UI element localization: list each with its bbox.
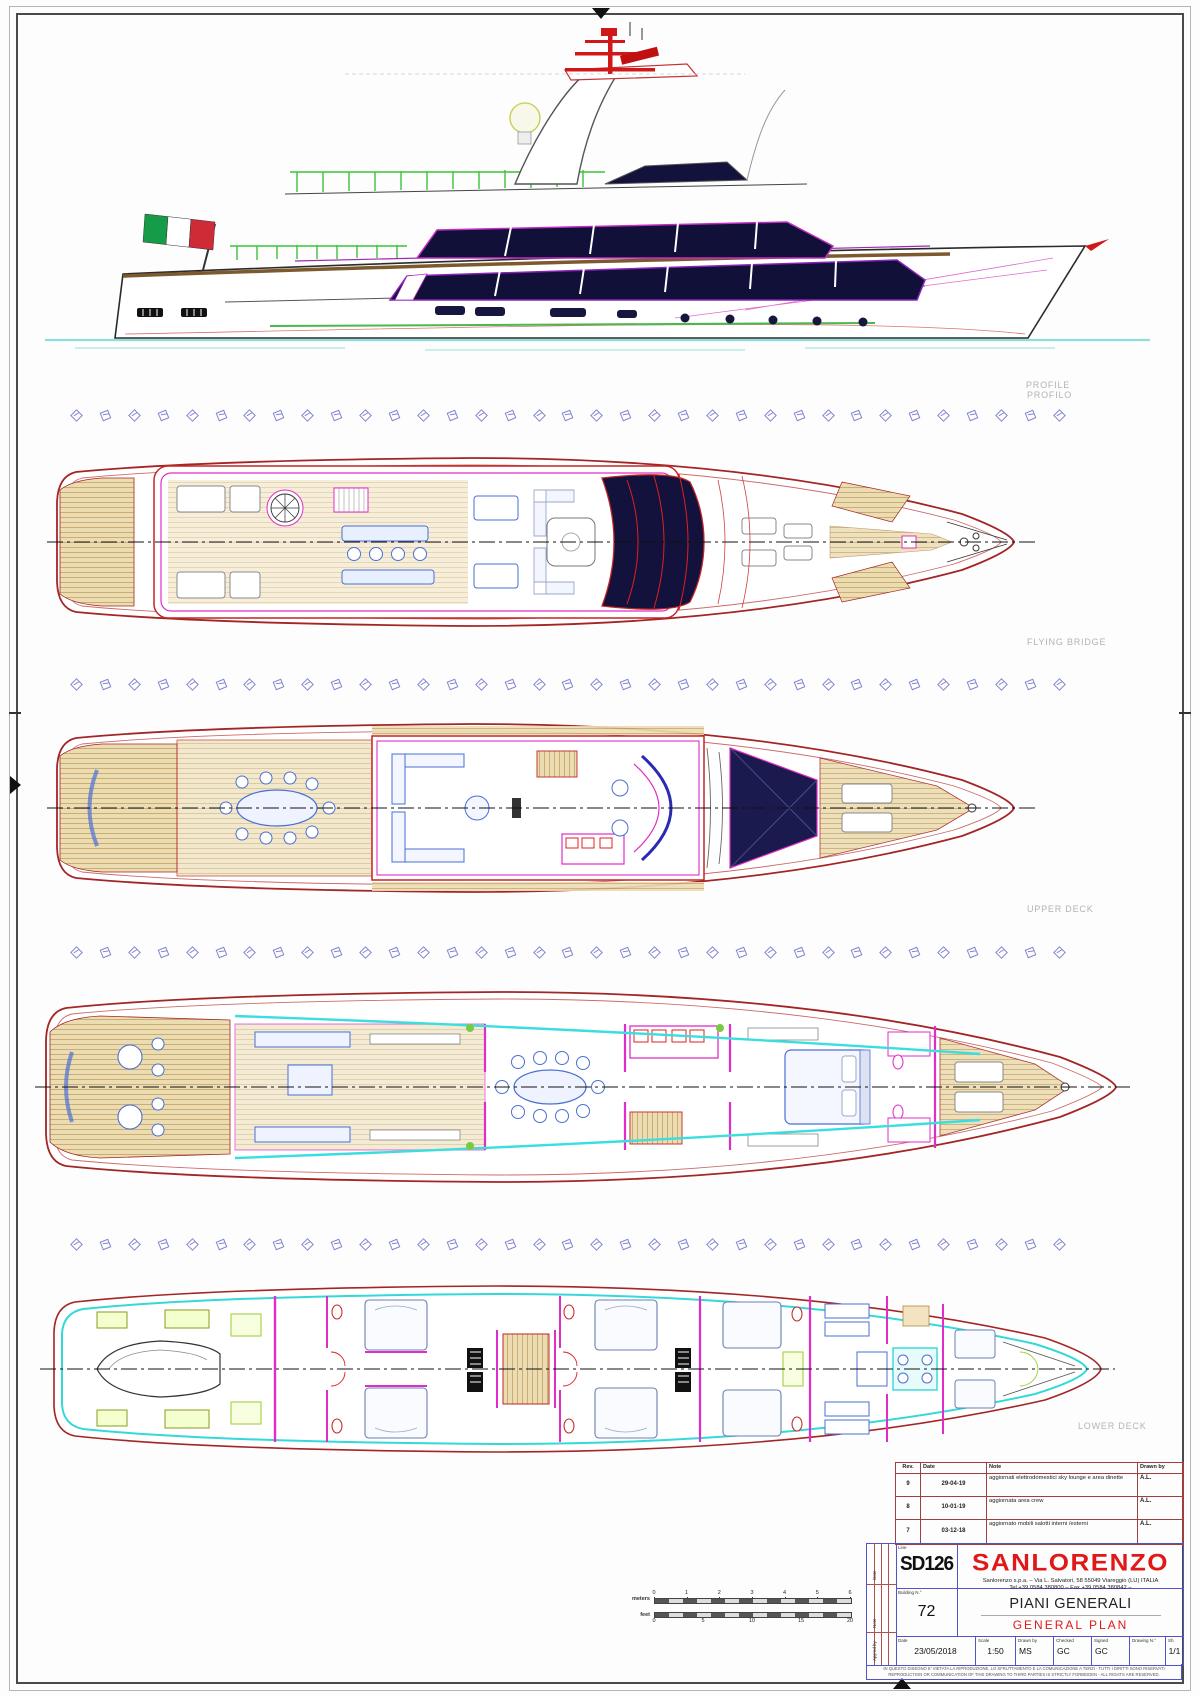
frame-marker-icon [100, 1238, 112, 1250]
frame-marker-icon [273, 1238, 285, 1250]
frame-marker-icon [301, 1238, 314, 1251]
frame-marker-icon [648, 678, 661, 691]
sanlorenzo-logo: SANLORENZO [958, 1548, 1183, 1577]
frame-marker-icon [533, 946, 546, 959]
meters-label: meters [626, 1596, 650, 1602]
profile-view-drawing [45, 18, 1150, 368]
frame-marker-icon [186, 409, 199, 422]
frame-marker-icon [417, 946, 430, 959]
frame-marker-icon [995, 678, 1008, 691]
rev-number: 8 [896, 1497, 921, 1520]
drawing-sheet: { "deck_labels": { "profile": "PROFILE",… [0, 0, 1200, 1697]
frame-marker-icon [128, 946, 141, 959]
frame-marker-icon [937, 678, 950, 691]
fold-tick-left [9, 712, 21, 714]
frame-marker-icon [648, 1238, 661, 1251]
frame-marker-icon [822, 409, 835, 422]
frame-marker-icon [793, 946, 805, 958]
frame-marker-icon [967, 946, 979, 958]
frame-marker-icon [562, 946, 574, 958]
rev-note: aggiornati elettrodomestici sky lounge e… [987, 1474, 1138, 1497]
frame-marker-icon [562, 409, 574, 421]
frame-marker-icon [389, 1238, 401, 1250]
feet-ticks: 0 5 10 15 20 [654, 1618, 850, 1626]
frame-marker-icon [128, 678, 141, 691]
frame-marker-icon [880, 1238, 893, 1251]
frame-marker-icon [533, 678, 546, 691]
frame-marker-icon [1053, 409, 1066, 422]
frame-marker-icon [331, 678, 343, 690]
frame-marker-icon [562, 678, 574, 690]
signed-value: GC [1092, 1646, 1129, 1656]
frame-marker-icon [70, 946, 83, 959]
disclaimer-english: REPRODUCTION OR COMMUNICATION OF THIS DR… [867, 1672, 1181, 1678]
frame-marker-icon [244, 678, 257, 691]
frame-marker-icon [186, 678, 199, 691]
frame-marker-icon [995, 409, 1008, 422]
frame-marker-icon [331, 946, 343, 958]
frame-marker-icon [301, 946, 314, 959]
frame-marker-icon [533, 1238, 546, 1251]
rev-drawn-by: A.L. [1138, 1497, 1183, 1520]
rev-drawn-by: A.L. [1138, 1520, 1183, 1544]
upper-deck-plan [42, 696, 1042, 921]
frame-marker-icon [244, 1238, 257, 1251]
frame-marker-icon [100, 946, 112, 958]
frame-marker-icon [475, 409, 488, 422]
frame-marker-icon [909, 678, 921, 690]
approval-strip: Date Note App'ed by [867, 1544, 897, 1665]
frame-marker-icon [273, 678, 285, 690]
frame-marker-icon [389, 946, 401, 958]
frame-marker-icon [1025, 946, 1037, 958]
frame-marker-icon [186, 946, 199, 959]
frame-marker-icon [909, 409, 921, 421]
upper-deck-label: UPPER DECK [1027, 904, 1094, 914]
frame-marker-icon [475, 678, 488, 691]
frame-marker-icon [1053, 1238, 1066, 1251]
frame-marker-icon [417, 678, 430, 691]
frame-marker-row [72, 408, 1064, 422]
frame-marker-icon [215, 946, 227, 958]
frame-marker-icon [648, 946, 661, 959]
frame-marker-icon [735, 946, 747, 958]
frame-marker-icon [678, 409, 690, 421]
frame-marker-icon [706, 1238, 719, 1251]
frame-marker-row [72, 1237, 1064, 1251]
frame-marker-icon [995, 946, 1008, 959]
frame-marker-row [72, 677, 1064, 691]
feet-label: feet [626, 1612, 650, 1618]
date-cell: Date 23/05/2018 [896, 1637, 976, 1665]
copyright-disclaimer: IN QUESTO DISEGNO E' VIETATA LA RIPRODUZ… [866, 1664, 1182, 1680]
frame-marker-icon [128, 1238, 141, 1251]
scale-meters: meters 0 1 2 3 4 5 6 [626, 1592, 866, 1608]
frame-marker-icon [880, 678, 893, 691]
signed-cell: Signed GC [1092, 1637, 1130, 1665]
rev-header: Rev. [896, 1463, 921, 1474]
frame-marker-icon [359, 409, 372, 422]
frame-marker-icon [446, 1238, 458, 1250]
strip-label-apped-by: App'ed by [872, 1641, 877, 1661]
frame-marker-icon [1053, 678, 1066, 691]
frame-marker-icon [967, 409, 979, 421]
frame-marker-icon [504, 409, 516, 421]
centering-mark-left-icon [10, 776, 21, 794]
frame-marker-icon [475, 946, 488, 959]
frame-marker-icon [620, 1238, 632, 1250]
frame-marker-icon [822, 1238, 835, 1251]
graphic-scale-bar: meters 0 1 2 3 4 5 6 feet 0 5 10 15 20 [626, 1592, 866, 1626]
rev-note: aggiornata area crew [987, 1497, 1138, 1520]
frame-marker-icon [590, 409, 603, 422]
frame-marker-icon [822, 678, 835, 691]
frame-marker-icon [186, 1238, 199, 1251]
frame-marker-icon [735, 678, 747, 690]
frame-marker-icon [851, 946, 863, 958]
frame-marker-icon [590, 1238, 603, 1251]
frame-marker-row [72, 945, 1064, 959]
rev-drawn-by: A.L. [1138, 1474, 1183, 1497]
date-value: 23/05/2018 [896, 1646, 975, 1656]
scale-cell: Scale 1:50 [976, 1637, 1016, 1665]
profilo-label: PROFILO [1027, 390, 1072, 400]
frame-marker-icon [273, 946, 285, 958]
frame-marker-icon [620, 946, 632, 958]
frame-marker-icon [1053, 946, 1066, 959]
frame-marker-icon [533, 409, 546, 422]
drawing-title-english: GENERAL PLAN [958, 1618, 1183, 1632]
frame-marker-icon [389, 409, 401, 421]
frame-marker-icon [504, 678, 516, 690]
frame-marker-icon [678, 678, 690, 690]
meters-bar [654, 1598, 852, 1604]
drawn-by-value: MS [1016, 1646, 1053, 1656]
frame-marker-icon [157, 409, 169, 421]
rev-date: 29-04-19 [921, 1474, 987, 1497]
strip-label-note: Note [872, 1618, 877, 1628]
frame-marker-icon [562, 1238, 574, 1250]
building-number: 72 [896, 1603, 957, 1621]
drawn-by-cell: Drawn by MS [1016, 1637, 1054, 1665]
frame-marker-icon [70, 409, 83, 422]
frame-marker-icon [967, 678, 979, 690]
frame-marker-icon [678, 946, 690, 958]
frame-marker-icon [157, 1238, 169, 1250]
lower-deck-label: LOWER DECK [1078, 1421, 1147, 1431]
frame-marker-icon [157, 946, 169, 958]
frame-marker-icon [475, 1238, 488, 1251]
frame-marker-icon [70, 678, 83, 691]
brand-address: Sanlorenzo s.p.a. – Via L. Salvatori, 58… [958, 1578, 1183, 1585]
rev-number: 9 [896, 1474, 921, 1497]
frame-marker-icon [851, 409, 863, 421]
frame-marker-icon [70, 1238, 83, 1251]
frame-marker-icon [764, 678, 777, 691]
frame-marker-icon [417, 409, 430, 422]
rev-date: 03-12-18 [921, 1520, 987, 1544]
frame-marker-icon [909, 946, 921, 958]
frame-marker-icon [620, 678, 632, 690]
frame-marker-icon [301, 409, 314, 422]
frame-marker-icon [620, 409, 632, 421]
frame-marker-icon [273, 409, 285, 421]
frame-marker-icon [417, 1238, 430, 1251]
frame-marker-icon [128, 409, 141, 422]
frame-marker-icon [1025, 409, 1037, 421]
frame-marker-icon [764, 946, 777, 959]
frame-marker-icon [937, 946, 950, 959]
line-cell: Line SD126 [896, 1544, 958, 1589]
frame-marker-icon [446, 946, 458, 958]
frame-marker-icon [678, 1238, 690, 1250]
frame-marker-icon [995, 1238, 1008, 1251]
frame-marker-icon [1025, 1238, 1037, 1250]
drawing-number-cell: Drawing N.° [1130, 1637, 1166, 1665]
frame-marker-icon [244, 409, 257, 422]
frame-marker-icon [851, 1238, 863, 1250]
frame-marker-icon [1025, 678, 1037, 690]
strip-label-date: Date [872, 1570, 877, 1580]
checked-cell: Checked GC [1054, 1637, 1092, 1665]
frame-marker-icon [331, 409, 343, 421]
rev-note-header: Note [987, 1463, 1138, 1474]
frame-marker-icon [331, 1238, 343, 1250]
frame-marker-icon [880, 409, 893, 422]
title-block-main: Date Note App'ed by Line SD126 SANLORENZ… [866, 1543, 1184, 1666]
flying-bridge-label: FLYING BRIDGE [1027, 637, 1106, 647]
frame-marker-icon [909, 1238, 921, 1250]
frame-marker-icon [359, 946, 372, 959]
frame-marker-icon [244, 946, 257, 959]
frame-marker-icon [504, 946, 516, 958]
rev-note: aggiornato mobili salotti interni /ester… [987, 1520, 1138, 1544]
frame-marker-icon [764, 1238, 777, 1251]
frame-marker-icon [215, 409, 227, 421]
flying-bridge-deck-plan [42, 430, 1042, 655]
frame-marker-icon [648, 409, 661, 422]
frame-marker-icon [764, 409, 777, 422]
frame-marker-icon [793, 409, 805, 421]
drawing-title-cell: PIANI GENERALI GENERAL PLAN [958, 1589, 1183, 1637]
frame-marker-icon [590, 946, 603, 959]
frame-marker-icon [359, 1238, 372, 1251]
frame-marker-icon [937, 409, 950, 422]
rev-date-header: Date [921, 1463, 987, 1474]
meters-ticks: 0 1 2 3 4 5 6 [654, 1590, 850, 1598]
scale-value: 1:50 [976, 1646, 1015, 1656]
frame-marker-icon [100, 409, 112, 421]
drawing-title-italian: PIANI GENERALI [958, 1596, 1183, 1612]
frame-marker-icon [967, 1238, 979, 1250]
frame-marker-icon [735, 1238, 747, 1250]
frame-marker-icon [215, 1238, 227, 1250]
frame-marker-icon [880, 946, 893, 959]
sheet-cell: Sh. 1/1 [1166, 1637, 1183, 1665]
frame-marker-icon [706, 946, 719, 959]
fold-tick-right [1179, 712, 1191, 714]
frame-marker-icon [706, 678, 719, 691]
frame-marker-icon [706, 409, 719, 422]
frame-marker-icon [446, 409, 458, 421]
frame-marker-icon [215, 678, 227, 690]
revision-table: Rev. Date Note Drawn by 9 29-04-19 aggio… [895, 1462, 1184, 1545]
checked-value: GC [1054, 1646, 1091, 1656]
frame-marker-icon [793, 1238, 805, 1250]
frame-marker-icon [822, 946, 835, 959]
frame-marker-icon [793, 678, 805, 690]
frame-marker-icon [735, 409, 747, 421]
rev-date: 10-01-19 [921, 1497, 987, 1520]
lower-deck-plan [35, 1252, 1125, 1487]
main-deck-plan [30, 962, 1140, 1212]
building-cell: Building N.° 72 [896, 1589, 958, 1637]
frame-marker-icon [100, 678, 112, 690]
profile-label: PROFILE [1026, 380, 1070, 390]
scale-feet: feet 0 5 10 15 20 [626, 1610, 866, 1626]
brand-cell: SANLORENZO Sanlorenzo s.p.a. – Via L. Sa… [958, 1544, 1183, 1589]
frame-marker-icon [851, 678, 863, 690]
frame-marker-icon [446, 678, 458, 690]
frame-marker-icon [937, 1238, 950, 1251]
frame-marker-icon [301, 678, 314, 691]
line-value: SD126 [900, 1553, 957, 1576]
frame-marker-icon [157, 678, 169, 690]
frame-marker-icon [504, 1238, 516, 1250]
rev-drawnby-header: Drawn by [1138, 1463, 1183, 1474]
frame-marker-icon [359, 678, 372, 691]
frame-marker-icon [590, 678, 603, 691]
title-block: Rev. Date Note Drawn by 9 29-04-19 aggio… [866, 1462, 1182, 1680]
frame-marker-icon [389, 678, 401, 690]
sheet-value: 1/1 [1166, 1646, 1183, 1656]
rev-number: 7 [896, 1520, 921, 1544]
